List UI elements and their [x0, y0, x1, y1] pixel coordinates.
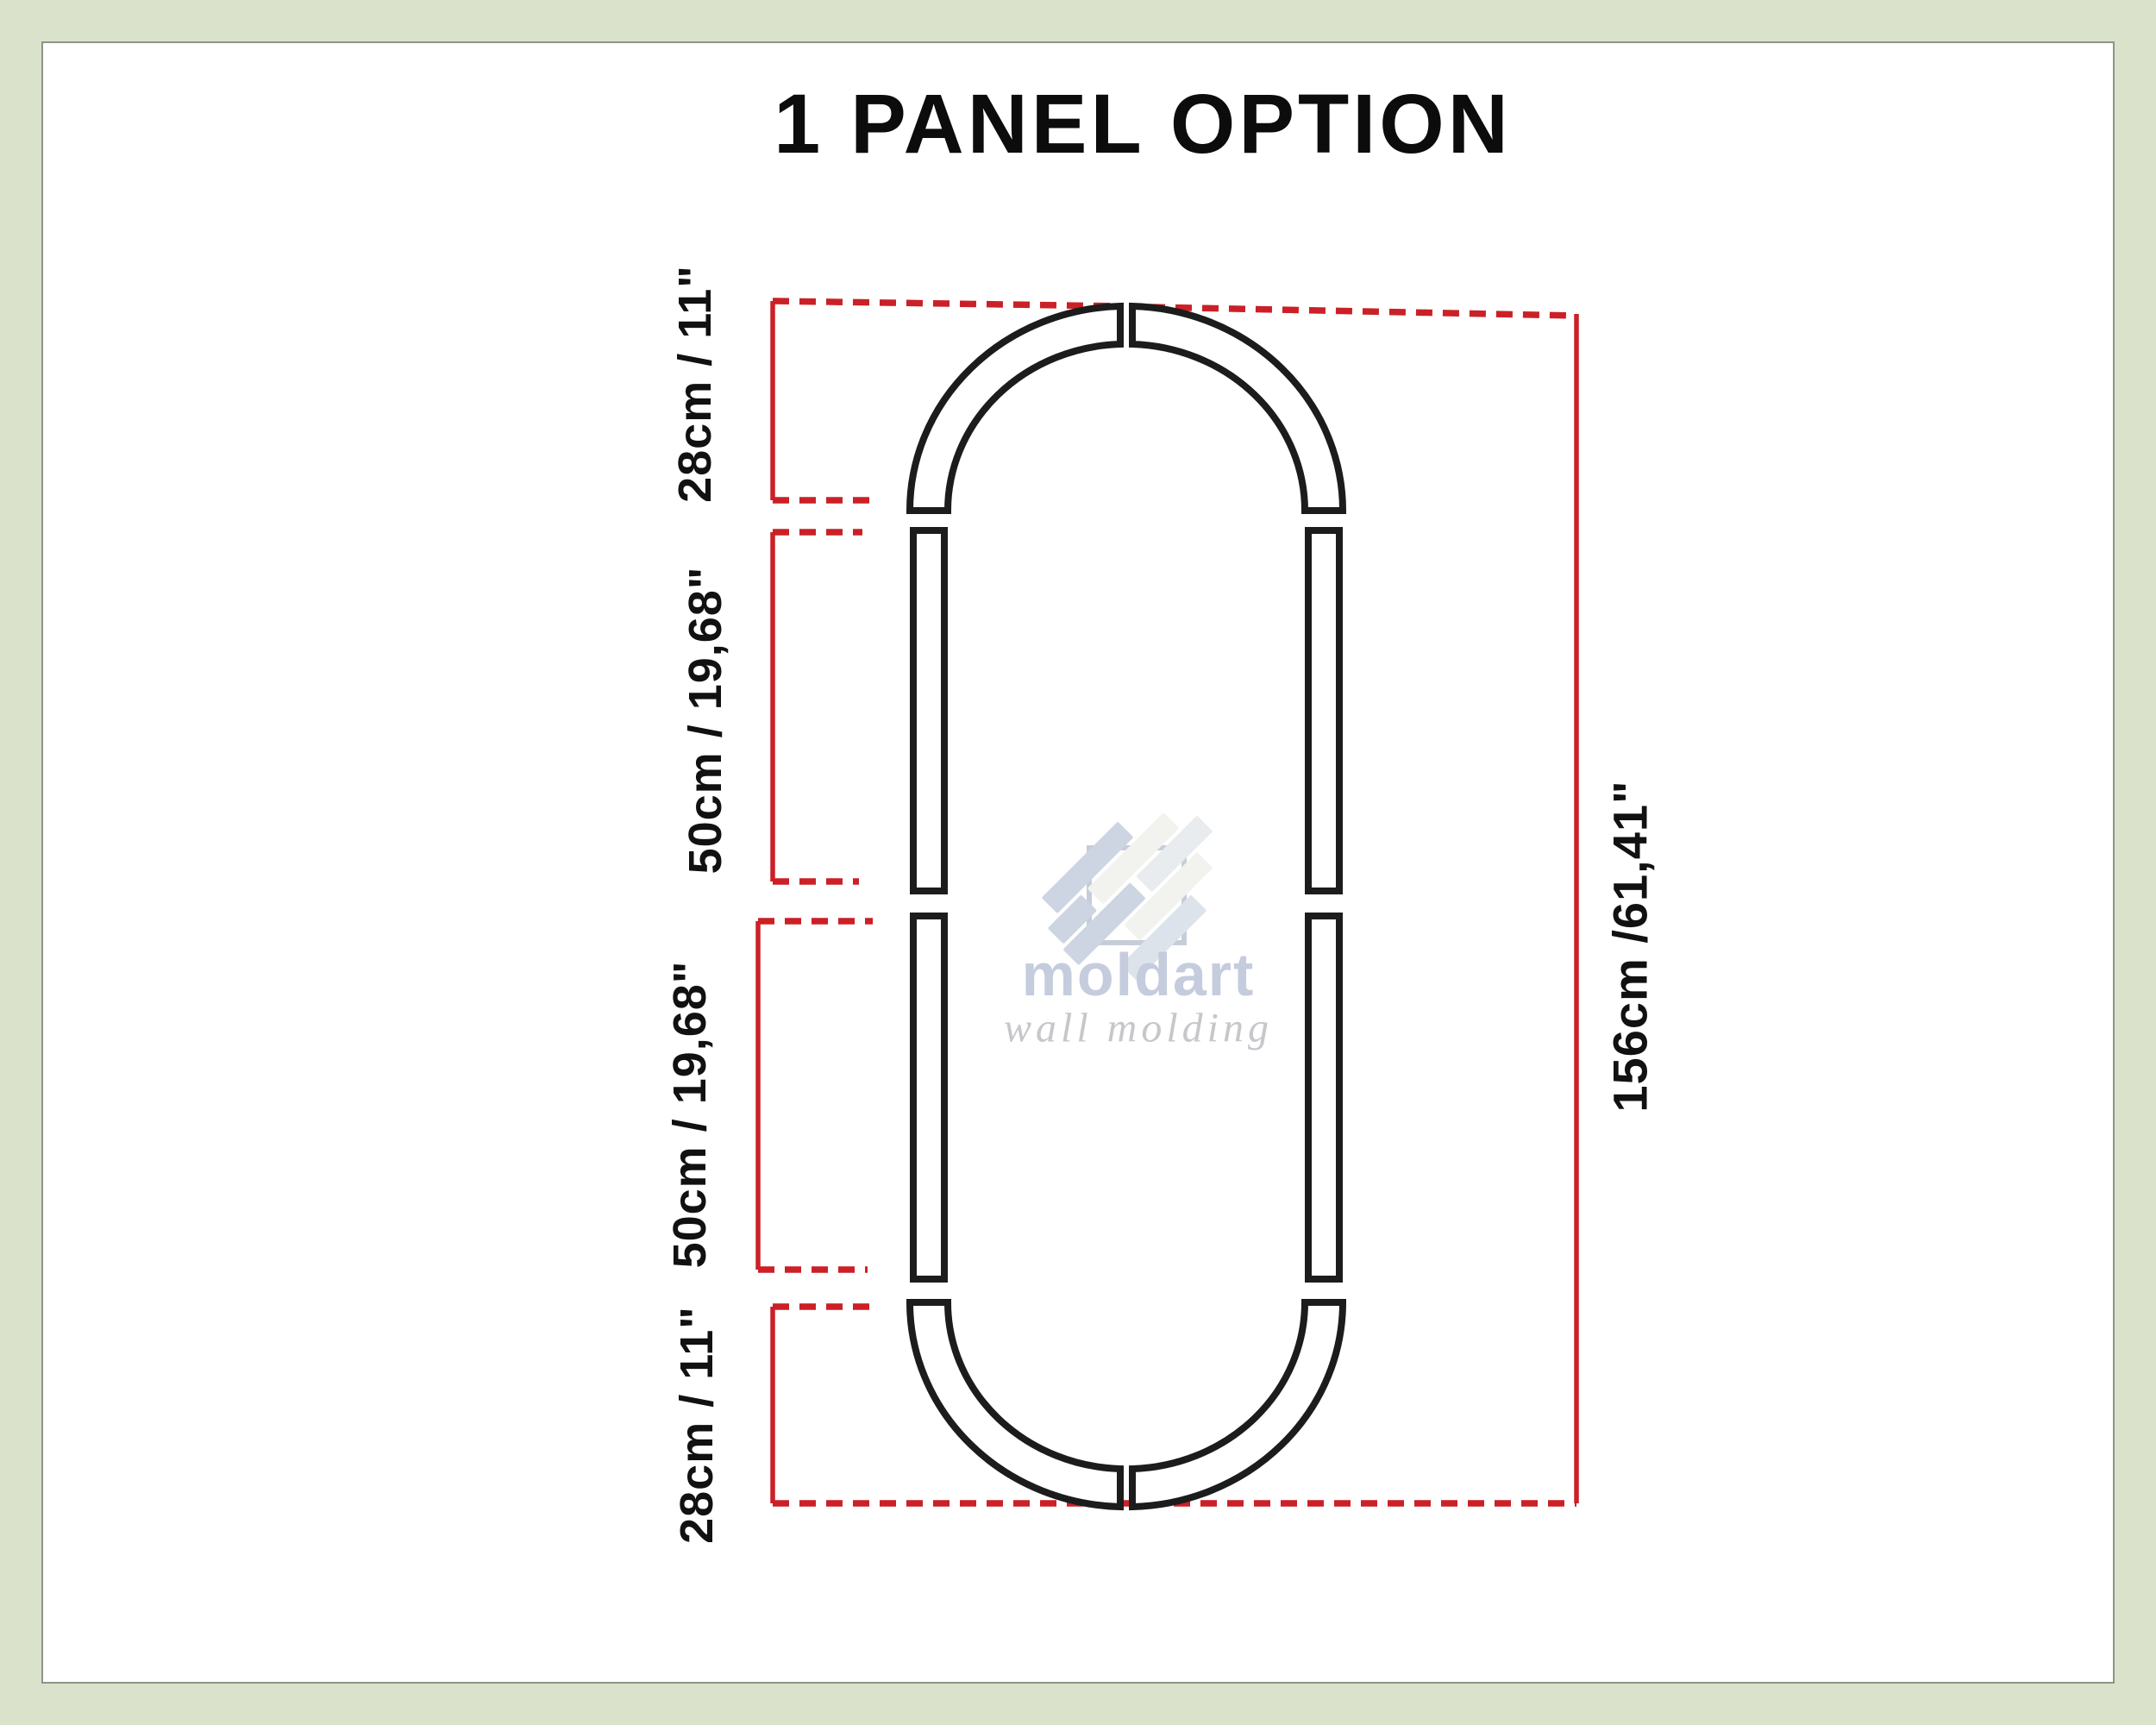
molding-arc-bottom-right [1132, 1302, 1343, 1507]
dim-label-top-arch: 28cm / 11" [668, 265, 722, 503]
molding-straight-left-upper [913, 530, 944, 891]
dim-dash-top-long [773, 301, 1121, 306]
molding-straight-left-lower [913, 916, 944, 1279]
molding-dimension-sheet: { "title": "1 PANEL OPTION", "dimensions… [0, 0, 2156, 1725]
dim-dash-top-right [1149, 307, 1576, 316]
molding-diagram-svg [0, 0, 2156, 1725]
molding-straight-right-upper [1308, 530, 1339, 891]
watermark-tagline: wall molding [1004, 1005, 1273, 1052]
molding-arc-bottom-left [910, 1302, 1120, 1507]
dim-label-upper-straight: 50cm / 19,68" [679, 567, 732, 875]
dim-label-bottom-arch: 28cm / 11" [670, 1306, 724, 1544]
dim-label-lower-straight: 50cm / 19,68" [663, 961, 717, 1269]
molding-arc-top-right [1132, 306, 1343, 511]
watermark-brand: moldart [1022, 940, 1256, 1009]
dim-label-total-height: 156cm /61,41" [1602, 780, 1658, 1112]
molding-straight-right-lower [1308, 916, 1339, 1279]
molding-arc-top-left [910, 306, 1120, 511]
